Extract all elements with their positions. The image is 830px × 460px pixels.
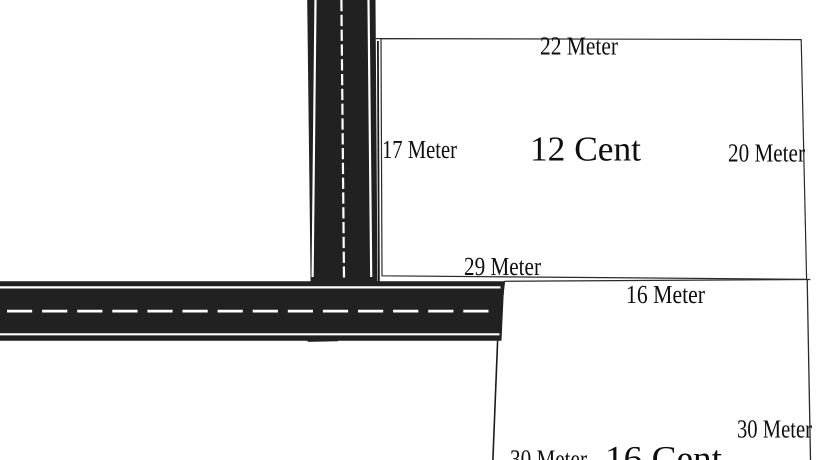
svg-text:29 Meter: 29 Meter xyxy=(464,252,541,281)
svg-text:30 Meter: 30 Meter xyxy=(737,415,812,444)
svg-text:22 Meter: 22 Meter xyxy=(540,32,618,61)
svg-text:16 Cent: 16 Cent xyxy=(605,439,722,460)
svg-text:30 Meter: 30 Meter xyxy=(510,445,587,460)
svg-text:12 Cent: 12 Cent xyxy=(530,130,641,169)
svg-text:20 Meter: 20 Meter xyxy=(728,139,805,168)
svg-text:17 Meter: 17 Meter xyxy=(382,135,457,164)
svg-text:16 Meter: 16 Meter xyxy=(626,280,705,309)
